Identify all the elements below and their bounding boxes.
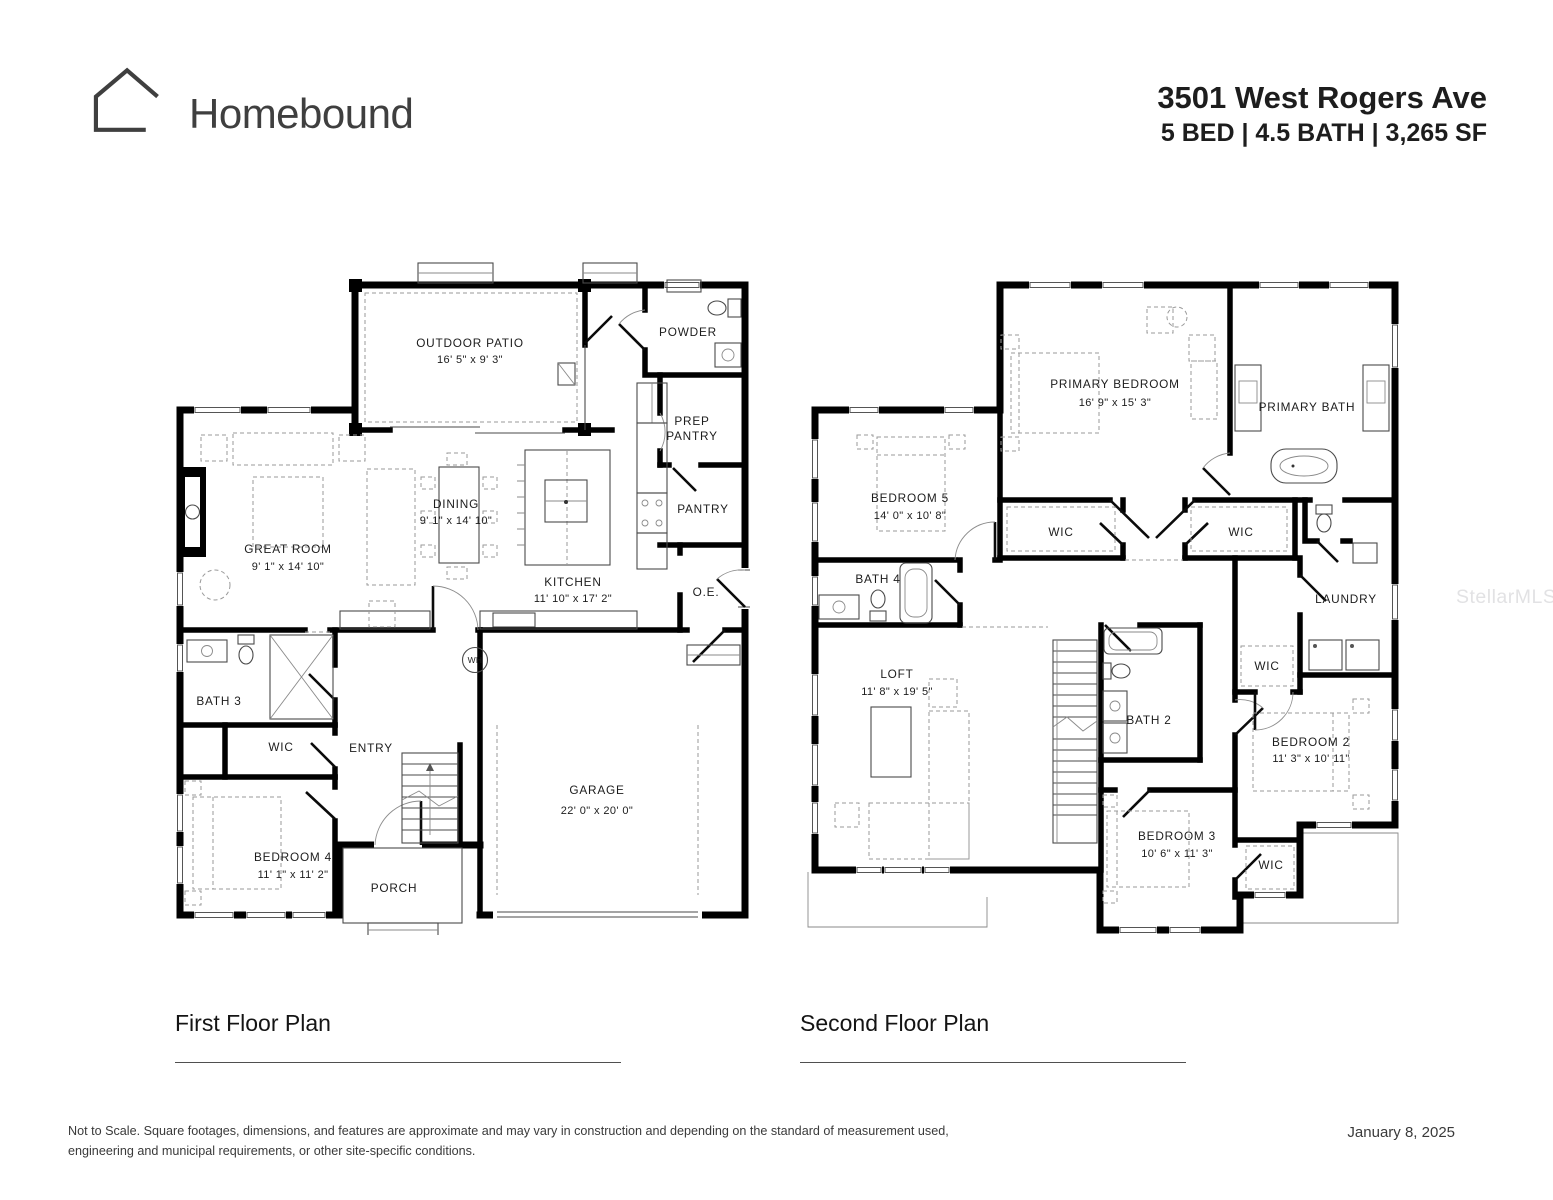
disclaimer-line1: Not to Scale. Square footages, dimension… bbox=[68, 1122, 1068, 1142]
room-label-wic: WIC bbox=[268, 740, 293, 754]
disclaimer-line2: engineering and municipal requirements, … bbox=[68, 1142, 1068, 1162]
room-dims-dining: 9' 1" x 14' 10" bbox=[420, 515, 492, 527]
room-dims-bedroom2: 11' 3" x 10' 11" bbox=[1272, 753, 1349, 765]
listing-address: 3501 West Rogers Ave bbox=[1157, 80, 1487, 116]
room-label-wic-right: WIC bbox=[1228, 525, 1253, 539]
room-label-bath3: BATH 3 bbox=[196, 694, 241, 708]
room-dims-bedroom3: 10' 6" x 11' 3" bbox=[1141, 848, 1213, 860]
room-label-wh: WH bbox=[468, 655, 483, 665]
first-floor-interior-walls bbox=[180, 285, 745, 915]
room-dims-bedroom5: 14' 0" x 10' 8" bbox=[874, 510, 946, 522]
room-label-garage: GARAGE bbox=[569, 783, 624, 797]
room-dims-primary-bedroom: 16' 9" x 15' 3" bbox=[1079, 397, 1151, 409]
brand-name: Homebound bbox=[189, 94, 413, 134]
second-floor-plan-drawing: PRIMARY BEDROOM 16' 9" x 15' 3" PRIMARY … bbox=[805, 255, 1400, 935]
room-label-bedroom4: BEDROOM 4 bbox=[254, 850, 332, 864]
room-label-bedroom2: BEDROOM 2 bbox=[1272, 735, 1350, 749]
room-dims-garage: 22' 0" x 20' 0" bbox=[561, 805, 633, 817]
room-label-wic-bedroom2: WIC bbox=[1254, 659, 1279, 673]
room-label-bedroom5: BEDROOM 5 bbox=[871, 491, 949, 505]
room-label-dining: DINING bbox=[433, 497, 479, 511]
first-floor-title-rule bbox=[175, 1062, 621, 1063]
disclaimer: Not to Scale. Square footages, dimension… bbox=[68, 1122, 1068, 1161]
floor-plan-sheet: Homebound 3501 West Rogers Ave 5 BED | 4… bbox=[0, 0, 1553, 1200]
room-label-kitchen: KITCHEN bbox=[544, 575, 601, 589]
listing-specs: 5 BED | 4.5 BATH | 3,265 SF bbox=[1157, 119, 1487, 148]
room-label-entry: ENTRY bbox=[349, 741, 393, 755]
room-label-powder: POWDER bbox=[659, 325, 717, 339]
room-label-great-room: GREAT ROOM bbox=[244, 542, 332, 556]
room-label-loft: LOFT bbox=[880, 667, 913, 681]
room-label-porch: PORCH bbox=[371, 881, 418, 895]
stellar-mls-watermark: StellarMLS bbox=[1456, 586, 1553, 609]
room-label-prep-pantry-1: PREP bbox=[674, 414, 709, 428]
sheet-date: January 8, 2025 bbox=[1347, 1124, 1455, 1141]
room-label-outdoor-patio: OUTDOOR PATIO bbox=[416, 336, 524, 350]
room-dims-bedroom4: 11' 1" x 11' 2" bbox=[258, 869, 329, 881]
room-label-pantry: PANTRY bbox=[677, 502, 729, 516]
room-label-bath4: BATH 4 bbox=[855, 572, 900, 586]
house-logo-icon bbox=[75, 62, 175, 134]
room-label-bath2: BATH 2 bbox=[1126, 713, 1171, 727]
room-label-oe: O.E. bbox=[693, 585, 720, 599]
room-label-laundry: LAUNDRY bbox=[1315, 592, 1377, 606]
room-label-primary-bath: PRIMARY BATH bbox=[1259, 400, 1356, 414]
room-label-prep-pantry-2: PANTRY bbox=[666, 429, 718, 443]
room-label-wic-bedroom3: WIC bbox=[1258, 858, 1283, 872]
listing-header: 3501 West Rogers Ave 5 BED | 4.5 BATH | … bbox=[1157, 80, 1487, 148]
room-label-bedroom3: BEDROOM 3 bbox=[1138, 829, 1216, 843]
first-floor-doors bbox=[306, 310, 745, 845]
room-label-wic-left: WIC bbox=[1048, 525, 1073, 539]
first-floor-stairs bbox=[402, 753, 458, 843]
first-floor-plan-drawing: OUTDOOR PATIO 16' 5" x 9' 3" POWDER PREP… bbox=[175, 255, 750, 935]
second-floor-title-rule bbox=[800, 1062, 1186, 1063]
first-floor-title: First Floor Plan bbox=[175, 1010, 331, 1037]
second-floor-stairs bbox=[1053, 640, 1097, 843]
room-dims-loft: 11' 8" x 19' 5" bbox=[861, 686, 933, 698]
room-label-primary-bedroom: PRIMARY BEDROOM bbox=[1050, 377, 1180, 391]
brand-logo: Homebound bbox=[75, 62, 413, 134]
room-dims-kitchen: 11' 10" x 17' 2" bbox=[534, 593, 612, 605]
second-floor-title: Second Floor Plan bbox=[800, 1010, 989, 1037]
room-dims-outdoor-patio: 16' 5" x 9' 3" bbox=[437, 354, 503, 366]
room-dims-great-room: 9' 1" x 14' 10" bbox=[252, 561, 324, 573]
